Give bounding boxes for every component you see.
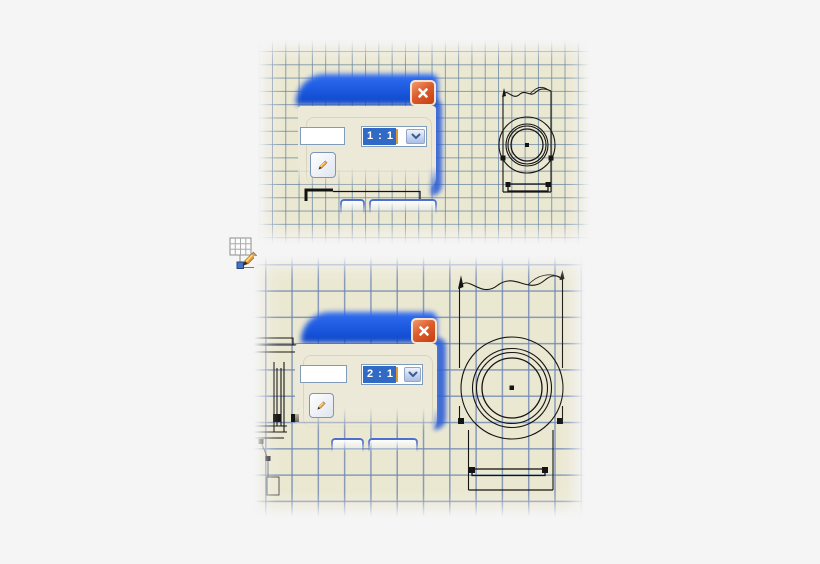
view-label-input[interactable] [300, 127, 345, 145]
pencil-icon [316, 395, 327, 416]
ok-button-faded[interactable] [340, 199, 365, 218]
break-flag [458, 275, 464, 289]
text-caret [396, 129, 398, 144]
app-canvas: 1 : 1 2 : 1 [0, 0, 820, 564]
close-icon [416, 86, 430, 100]
break-flag [560, 270, 565, 280]
ok-button-faded[interactable] [331, 438, 364, 456]
scale-dropdown-button[interactable] [404, 367, 421, 382]
scale-combobox[interactable]: 2 : 1 [361, 364, 423, 385]
text-caret [396, 367, 398, 382]
scale-dropdown-button[interactable] [406, 129, 425, 144]
chevron-down-icon [408, 371, 418, 378]
close-button[interactable] [410, 80, 436, 106]
edit-view-grid-pencil-icon[interactable] [227, 236, 261, 272]
scale-value[interactable]: 2 : 1 [363, 366, 396, 383]
close-icon [417, 324, 431, 338]
dialog-body [295, 344, 437, 432]
edit-pencil-button[interactable] [309, 393, 334, 418]
drawing-view-bottom[interactable] [450, 268, 572, 498]
chevron-down-icon [411, 133, 421, 140]
scale-value[interactable]: 1 : 1 [363, 128, 396, 145]
scale-combobox[interactable]: 1 : 1 [361, 126, 427, 147]
view-label-input[interactable] [300, 365, 347, 383]
close-button[interactable] [411, 318, 437, 344]
drawing-view-top[interactable] [494, 82, 562, 197]
cancel-button-faded[interactable] [369, 199, 437, 218]
pencil-icon [317, 154, 329, 176]
edit-pencil-button[interactable] [310, 152, 336, 178]
cancel-button-faded[interactable] [368, 438, 418, 456]
